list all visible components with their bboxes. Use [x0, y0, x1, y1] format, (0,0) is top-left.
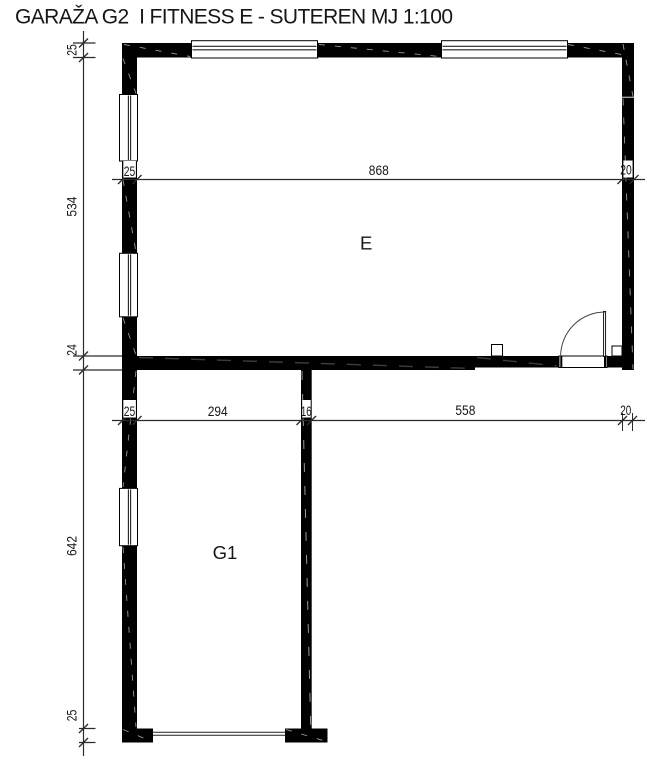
svg-text:25: 25: [65, 44, 80, 56]
svg-text:642: 642: [64, 536, 80, 556]
svg-text:24: 24: [65, 344, 80, 356]
svg-text:868: 868: [369, 162, 389, 178]
svg-text:25: 25: [124, 164, 136, 179]
svg-text:20: 20: [620, 403, 631, 418]
svg-text:E: E: [360, 233, 372, 254]
svg-text:25: 25: [124, 404, 136, 419]
svg-text:G1: G1: [213, 542, 238, 563]
svg-text:534: 534: [64, 196, 80, 216]
svg-text:GARAŽA G2 I FITNESS E - SUTER: GARAŽA G2 I FITNESS E - SUTEREN MJ 1:100: [15, 6, 453, 29]
svg-text:558: 558: [455, 402, 475, 418]
svg-text:20: 20: [620, 162, 632, 177]
svg-text:294: 294: [208, 403, 228, 419]
svg-text:25: 25: [65, 710, 80, 722]
svg-text:16: 16: [301, 404, 312, 419]
